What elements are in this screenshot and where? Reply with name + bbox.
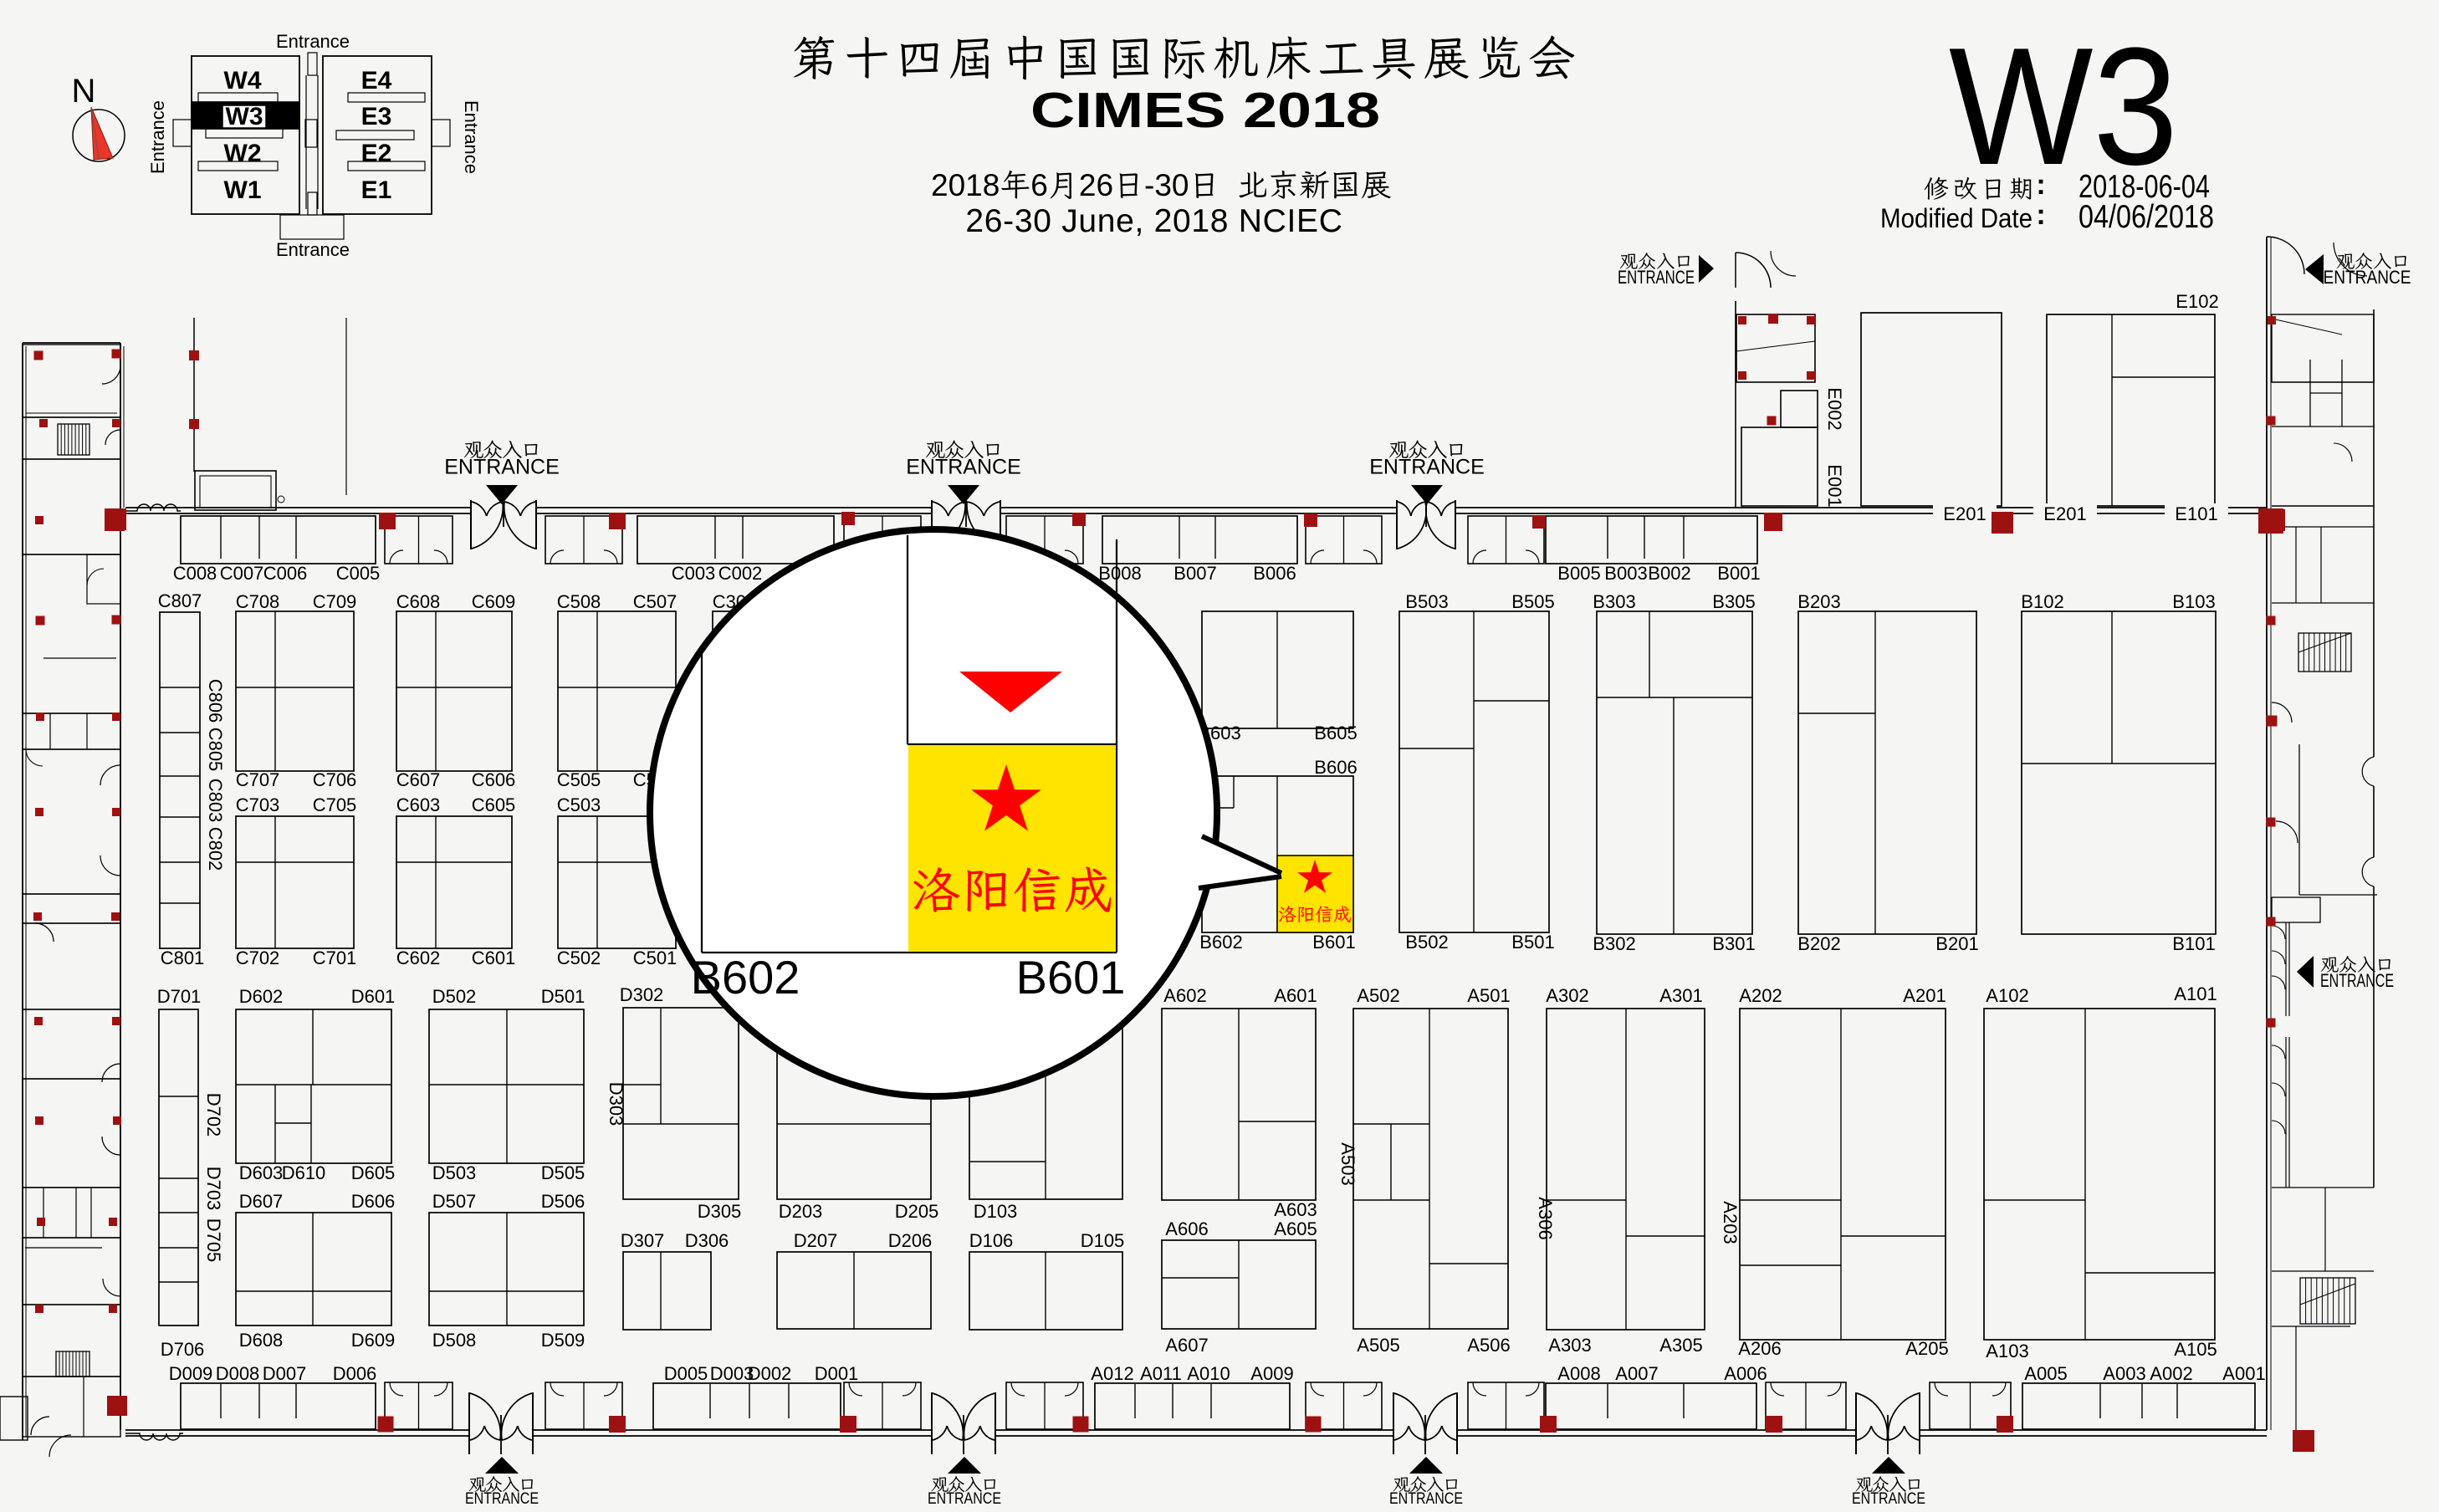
- svg-text:A010: A010: [1187, 1363, 1230, 1384]
- svg-text:D602: D602: [239, 986, 284, 1007]
- svg-text:A206: A206: [1738, 1338, 1781, 1359]
- svg-text:B503: B503: [1405, 591, 1448, 612]
- svg-text:D603: D603: [239, 1162, 284, 1183]
- svg-text:B202: B202: [1797, 933, 1840, 954]
- svg-text:A603: A603: [1274, 1199, 1317, 1220]
- svg-text:C608: C608: [396, 591, 441, 612]
- svg-text:Entrance: Entrance: [276, 31, 350, 52]
- svg-text:C609: C609: [472, 591, 516, 612]
- svg-text:E2: E2: [361, 140, 392, 167]
- svg-text:D507: D507: [432, 1191, 477, 1212]
- svg-text:B602: B602: [1199, 932, 1242, 953]
- svg-text:D103: D103: [974, 1201, 1018, 1222]
- svg-text:B601: B601: [1016, 951, 1126, 1004]
- svg-text:A505: A505: [1357, 1335, 1399, 1356]
- svg-text:B006: B006: [1253, 563, 1296, 584]
- svg-text:D105: D105: [1081, 1230, 1125, 1251]
- svg-text:E4: E4: [361, 67, 392, 94]
- svg-text:C602: C602: [396, 948, 441, 968]
- svg-text:D605: D605: [351, 1162, 396, 1183]
- svg-text:B502: B502: [1405, 932, 1448, 953]
- svg-text:D002: D002: [748, 1363, 792, 1384]
- svg-text:C006: C006: [263, 563, 308, 584]
- svg-text:B301: B301: [1712, 933, 1755, 954]
- svg-text:C502: C502: [557, 948, 601, 968]
- svg-text:C501: C501: [633, 948, 677, 968]
- svg-text:C702: C702: [236, 948, 280, 968]
- svg-text:B102: B102: [2021, 591, 2063, 612]
- svg-text:CIMES 2018: CIMES 2018: [1030, 83, 1380, 138]
- svg-text:C807: C807: [158, 590, 202, 611]
- svg-text:D608: D608: [239, 1330, 284, 1351]
- svg-text:C603: C603: [396, 794, 441, 815]
- svg-text:ENTRANCE: ENTRANCE: [1389, 1490, 1463, 1508]
- svg-text:D305: D305: [698, 1201, 742, 1222]
- svg-text:B305: B305: [1712, 591, 1755, 612]
- svg-text:A301: A301: [1659, 985, 1702, 1006]
- svg-text:D503: D503: [432, 1162, 477, 1183]
- svg-text:B606: B606: [1314, 757, 1357, 778]
- svg-text:D509: D509: [541, 1330, 585, 1351]
- svg-text:E102: E102: [2176, 291, 2218, 312]
- svg-text:E201: E201: [1943, 503, 1986, 524]
- svg-text:C707: C707: [236, 769, 280, 790]
- svg-text:C508: C508: [557, 591, 601, 612]
- svg-text:C705: C705: [313, 794, 357, 815]
- svg-text:04/06/2018: 04/06/2018: [2079, 199, 2214, 235]
- svg-text:C806: C806: [205, 679, 226, 723]
- svg-text:D501: D501: [541, 986, 585, 1007]
- svg-text:B008: B008: [1098, 563, 1141, 584]
- svg-text::: :: [2036, 169, 2045, 201]
- svg-text:B505: B505: [1511, 591, 1554, 612]
- svg-text:A001: A001: [2222, 1363, 2265, 1384]
- svg-text:E3: E3: [361, 103, 392, 130]
- svg-text:ENTRANCE: ENTRANCE: [2324, 267, 2411, 288]
- svg-text:C505: C505: [557, 769, 601, 790]
- svg-text:D009: D009: [169, 1363, 213, 1384]
- svg-text:ENTRANCE: ENTRANCE: [1852, 1490, 1925, 1508]
- svg-text:D001: D001: [815, 1363, 859, 1384]
- svg-text:B103: B103: [2172, 591, 2215, 612]
- svg-text:6: 6: [1030, 168, 1048, 202]
- svg-text:D701: D701: [157, 986, 202, 1007]
- svg-text:D609: D609: [351, 1330, 396, 1351]
- svg-text:A101: A101: [2174, 983, 2217, 1004]
- svg-text:D302: D302: [620, 984, 664, 1005]
- svg-text:B203: B203: [1797, 591, 1840, 612]
- svg-text:W1: W1: [224, 176, 262, 204]
- svg-text:B303: B303: [1593, 591, 1635, 612]
- svg-text:A202: A202: [1739, 985, 1782, 1006]
- svg-text:E201: E201: [2043, 503, 2086, 524]
- svg-text:D005: D005: [664, 1363, 708, 1384]
- svg-text:C605: C605: [472, 794, 516, 815]
- svg-text:A502: A502: [1357, 985, 1399, 1006]
- svg-text:C706: C706: [313, 769, 357, 790]
- svg-text:D006: D006: [333, 1363, 377, 1384]
- svg-text:B001: B001: [1717, 563, 1760, 584]
- svg-text:A302: A302: [1546, 985, 1588, 1006]
- svg-text:C703: C703: [236, 794, 280, 815]
- svg-text:D702: D702: [203, 1093, 224, 1137]
- svg-text:D505: D505: [541, 1162, 585, 1183]
- svg-text:A607: A607: [1165, 1335, 1208, 1356]
- svg-text:B601: B601: [1312, 932, 1355, 953]
- svg-text:C606: C606: [472, 769, 516, 790]
- svg-text:W4: W4: [224, 67, 262, 94]
- svg-text:A103: A103: [1986, 1341, 2028, 1361]
- svg-text:D307: D307: [621, 1230, 665, 1251]
- svg-text:D008: D008: [216, 1363, 260, 1384]
- svg-text:E002: E002: [1824, 387, 1845, 430]
- svg-text:-30: -30: [1144, 168, 1189, 202]
- svg-text:Modified Date: Modified Date: [1880, 203, 2033, 233]
- svg-text:A201: A201: [1903, 985, 1946, 1006]
- svg-text:D303: D303: [606, 1082, 626, 1126]
- svg-text:B003: B003: [1604, 563, 1647, 584]
- svg-text:W2: W2: [224, 140, 262, 167]
- svg-text:C007: C007: [220, 563, 264, 584]
- svg-text:Entrance: Entrance: [276, 239, 350, 260]
- svg-text:W3: W3: [226, 103, 263, 130]
- svg-text:E001: E001: [1824, 464, 1845, 507]
- svg-text:A002: A002: [2150, 1363, 2192, 1384]
- svg-text:C507: C507: [633, 591, 677, 612]
- svg-text:ENTRANCE: ENTRANCE: [2320, 970, 2394, 991]
- svg-text:N: N: [72, 73, 96, 110]
- svg-text:2018: 2018: [931, 168, 1000, 202]
- svg-text:ENTRANCE: ENTRANCE: [444, 456, 560, 479]
- svg-text:C802: C802: [205, 827, 226, 871]
- svg-text:C003: C003: [672, 563, 716, 584]
- svg-text:A003: A003: [2103, 1363, 2145, 1384]
- svg-text:26: 26: [1079, 168, 1113, 202]
- svg-text:B501: B501: [1511, 932, 1554, 953]
- svg-text:Entrance: Entrance: [147, 100, 168, 174]
- svg-text:26-30 June, 2018 NCIEC: 26-30 June, 2018 NCIEC: [965, 203, 1342, 239]
- svg-text:D705: D705: [203, 1218, 224, 1263]
- svg-text:C801: C801: [161, 948, 205, 968]
- svg-text:D205: D205: [895, 1201, 939, 1222]
- svg-text:B201: B201: [1935, 933, 1978, 954]
- svg-text:A501: A501: [1467, 985, 1510, 1006]
- svg-text:A306: A306: [1535, 1197, 1556, 1239]
- svg-text:B101: B101: [2172, 933, 2215, 954]
- svg-text:C005: C005: [336, 563, 381, 584]
- svg-text:ENTRANCE: ENTRANCE: [465, 1490, 539, 1508]
- svg-text:A102: A102: [1986, 985, 2028, 1006]
- svg-text:D607: D607: [239, 1191, 284, 1212]
- svg-text:A303: A303: [1548, 1335, 1591, 1356]
- svg-text:D706: D706: [161, 1339, 205, 1360]
- svg-text:A005: A005: [2024, 1363, 2067, 1384]
- svg-text::: :: [2036, 199, 2045, 231]
- svg-text:D610: D610: [282, 1162, 326, 1183]
- svg-text:Entrance: Entrance: [461, 100, 482, 174]
- svg-text:ENTRANCE: ENTRANCE: [928, 1490, 1001, 1508]
- svg-text:C709: C709: [313, 591, 357, 612]
- svg-text:C607: C607: [396, 769, 441, 790]
- svg-text:A009: A009: [1250, 1363, 1293, 1384]
- svg-text:A601: A601: [1274, 985, 1317, 1006]
- svg-text:A011: A011: [1140, 1363, 1182, 1384]
- svg-text:A602: A602: [1163, 985, 1206, 1006]
- svg-text:E1: E1: [361, 176, 392, 204]
- svg-text:D703: D703: [203, 1167, 224, 1211]
- svg-text:D606: D606: [351, 1191, 396, 1212]
- svg-text:ENTRANCE: ENTRANCE: [1369, 456, 1485, 479]
- svg-text:C708: C708: [236, 591, 280, 612]
- svg-text:D508: D508: [432, 1330, 477, 1351]
- svg-text:B602: B602: [691, 951, 800, 1004]
- svg-text:B002: B002: [1648, 563, 1690, 584]
- svg-text:A503: A503: [1337, 1142, 1358, 1185]
- svg-text:D203: D203: [779, 1201, 823, 1222]
- svg-text:ENTRANCE: ENTRANCE: [1618, 267, 1695, 288]
- svg-text:D502: D502: [432, 986, 477, 1007]
- svg-text:D106: D106: [969, 1230, 1014, 1251]
- svg-text:A506: A506: [1467, 1335, 1510, 1356]
- svg-text:E101: E101: [2175, 503, 2217, 524]
- svg-text:A605: A605: [1274, 1218, 1317, 1239]
- svg-text:B007: B007: [1173, 563, 1216, 584]
- svg-text:D007: D007: [263, 1363, 307, 1384]
- svg-text:A205: A205: [1905, 1338, 1948, 1359]
- svg-text:C503: C503: [557, 794, 601, 815]
- svg-text:A012: A012: [1091, 1363, 1133, 1384]
- svg-text:B005: B005: [1557, 563, 1600, 584]
- svg-text:C008: C008: [173, 563, 217, 584]
- svg-text:D506: D506: [541, 1191, 585, 1212]
- svg-text:B302: B302: [1593, 933, 1635, 954]
- svg-text:A007: A007: [1615, 1363, 1658, 1384]
- svg-text:D306: D306: [685, 1230, 729, 1251]
- svg-text:A203: A203: [1720, 1201, 1741, 1244]
- svg-text:B605: B605: [1314, 723, 1357, 743]
- svg-text:A305: A305: [1659, 1335, 1702, 1356]
- svg-text:A606: A606: [1165, 1218, 1208, 1239]
- svg-text:D207: D207: [794, 1230, 838, 1251]
- svg-text:D206: D206: [888, 1230, 933, 1251]
- svg-text:ENTRANCE: ENTRANCE: [906, 456, 1021, 479]
- svg-text:C701: C701: [313, 948, 357, 968]
- svg-text:C803: C803: [205, 779, 226, 823]
- svg-text:A008: A008: [1557, 1363, 1600, 1384]
- svg-text:A105: A105: [2174, 1339, 2217, 1360]
- svg-text:C805: C805: [205, 728, 226, 772]
- svg-text:A006: A006: [1724, 1363, 1767, 1384]
- svg-text:C601: C601: [472, 948, 516, 968]
- svg-text:D601: D601: [351, 986, 396, 1007]
- svg-text:C002: C002: [718, 563, 763, 584]
